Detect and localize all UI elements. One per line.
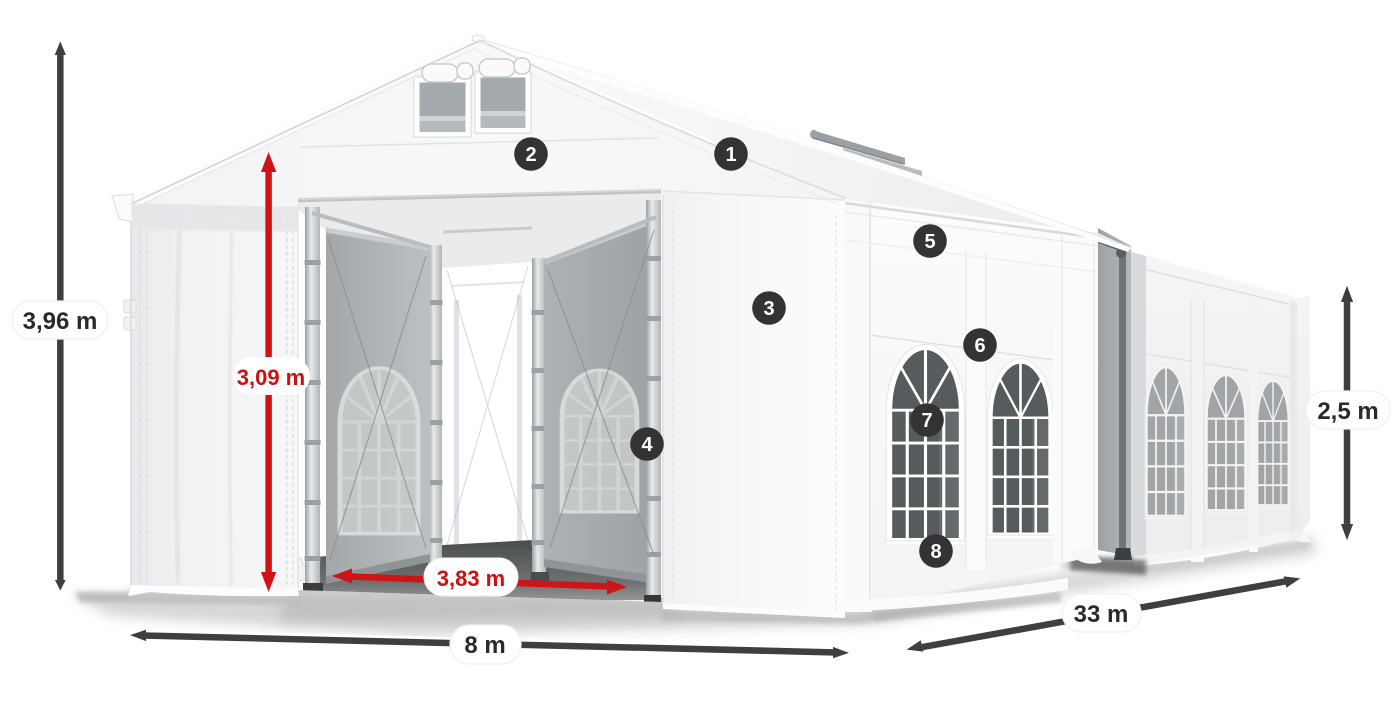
svg-text:2: 2 — [525, 144, 536, 166]
svg-text:5: 5 — [924, 231, 935, 253]
svg-text:3: 3 — [763, 298, 774, 320]
svg-text:33 m: 33 m — [1074, 601, 1129, 628]
svg-text:8: 8 — [930, 541, 941, 563]
svg-text:3,83 m: 3,83 m — [437, 566, 506, 591]
svg-text:3,96 m: 3,96 m — [23, 308, 98, 335]
svg-text:6: 6 — [974, 335, 985, 357]
svg-text:2,5 m: 2,5 m — [1317, 398, 1378, 425]
svg-text:1: 1 — [725, 144, 736, 166]
svg-text:7: 7 — [921, 410, 932, 432]
svg-text:3,09 m: 3,09 m — [237, 365, 306, 390]
svg-text:4: 4 — [641, 434, 653, 456]
svg-text:8 m: 8 m — [464, 632, 505, 659]
